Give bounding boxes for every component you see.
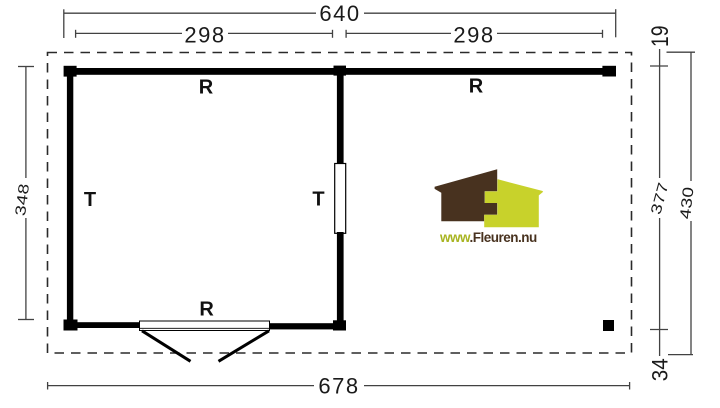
svg-text:T: T [312, 189, 324, 211]
svg-text:430: 430 [676, 186, 697, 220]
svg-text:R: R [469, 76, 484, 98]
svg-text:T: T [84, 189, 96, 211]
svg-text:R: R [199, 77, 214, 99]
svg-text:298: 298 [453, 22, 494, 47]
svg-text:348: 348 [12, 182, 33, 216]
svg-text:377: 377 [648, 181, 672, 217]
svg-text:R: R [199, 299, 214, 321]
svg-text:298: 298 [184, 22, 225, 47]
svg-text:34: 34 [649, 358, 673, 381]
svg-text:www.Fleuren.nu: www.Fleuren.nu [439, 230, 537, 245]
svg-text:19: 19 [646, 25, 674, 46]
svg-text:640: 640 [319, 1, 360, 26]
svg-text:678: 678 [318, 373, 359, 398]
